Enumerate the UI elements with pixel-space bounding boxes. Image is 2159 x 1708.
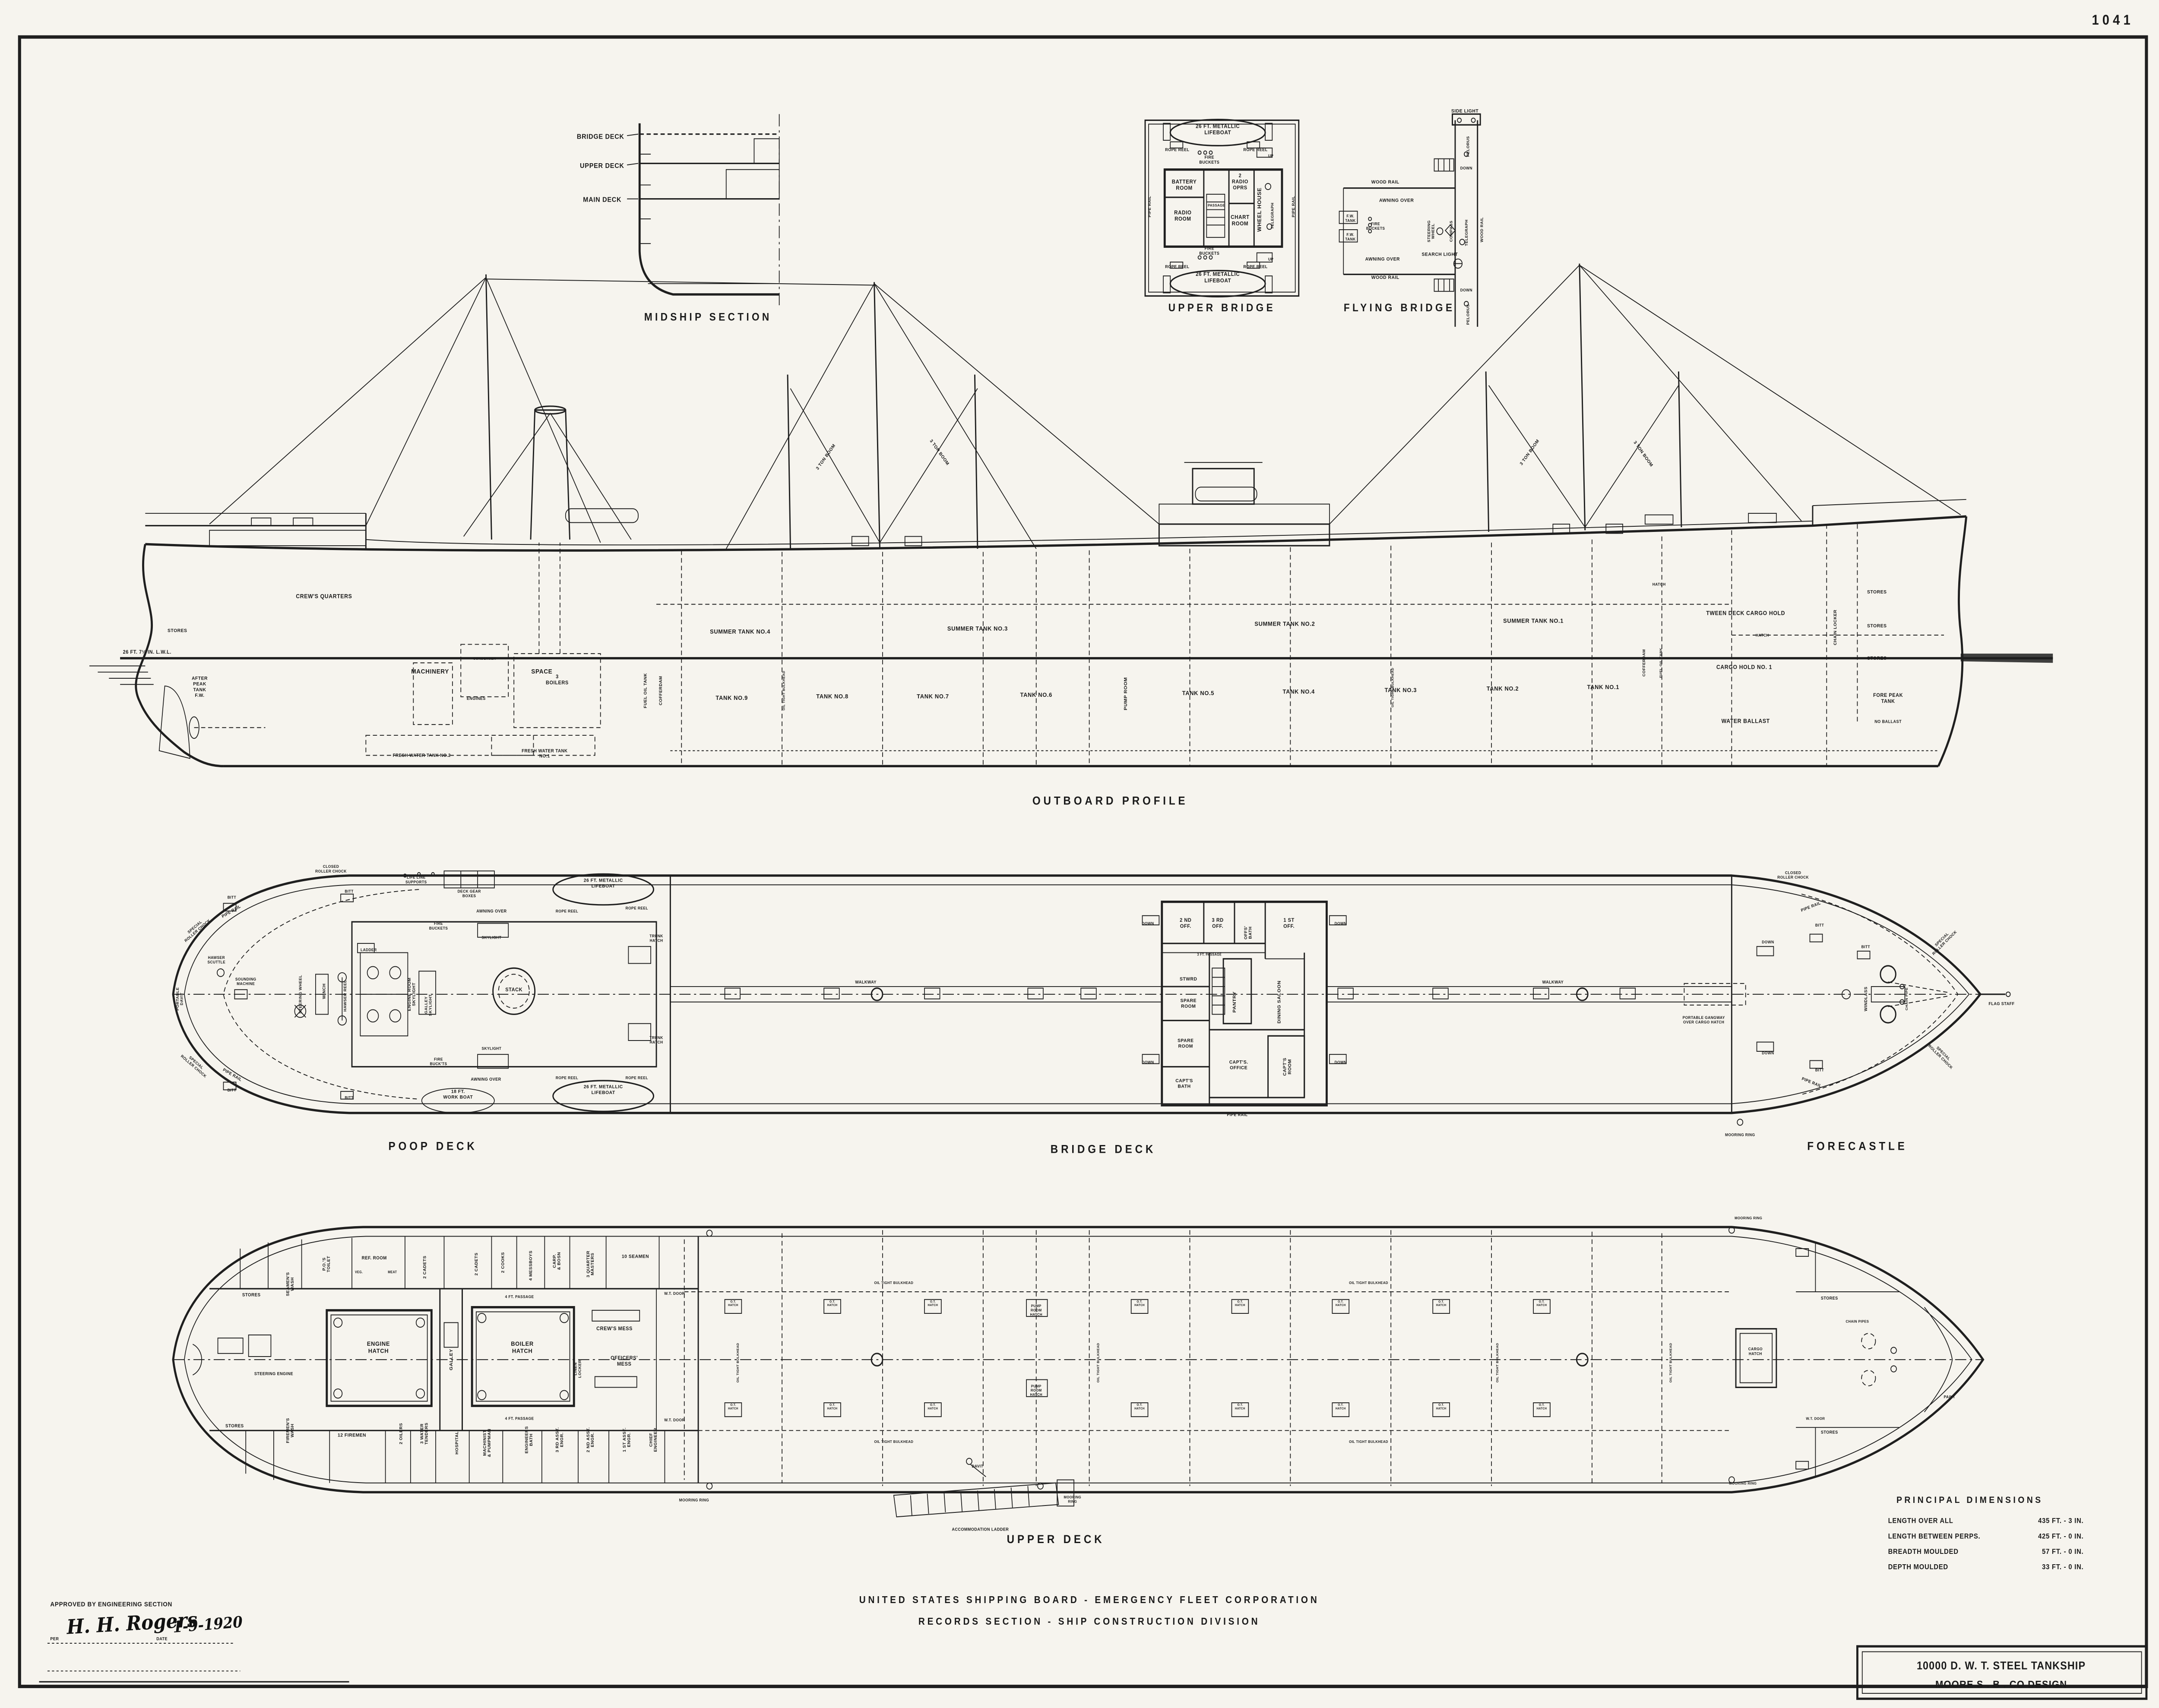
caption-flying-bridge: FLYING BRIDGE [1344, 302, 1455, 314]
title-line2: MOORE S . B . CO DESIGN [1935, 1679, 2067, 1690]
annotation-label: TANK NO.5 [1182, 690, 1215, 697]
annotation-label: 3 TON BOOM [929, 439, 950, 467]
annotation-label: STWRD [1180, 976, 1197, 982]
annotation-label: TANK NO.8 [816, 693, 848, 700]
annotation-label: 4 MESSBOYS [529, 1250, 533, 1281]
annotation-label: AWNING OVER [476, 909, 507, 914]
annotation-label: TANK NO.2 [1487, 685, 1519, 692]
dimension-value: 57 FT. - 0 IN. [2042, 1548, 2083, 1556]
annotation-label: 4 FT. PASSAGE [505, 1294, 534, 1299]
annotation-label: STEERINGWHEEL [1427, 220, 1435, 242]
annotation-label: BATTERYROOM [1172, 178, 1197, 191]
dimension-value: 435 FT. - 3 IN. [2038, 1517, 2083, 1525]
annotation-label: CARGO HOLD NO. 1 [1716, 664, 1772, 671]
annotation-label: PIPE RAIL [1227, 1113, 1247, 1118]
annotation-label: SUMMER TANK NO.2 [1254, 620, 1315, 627]
dimension-value: 425 FT. - 0 IN. [2038, 1533, 2083, 1540]
annotation-label: FIREBUCKETS [429, 921, 448, 930]
annotation-label: O.T.HATCH [1436, 1404, 1447, 1411]
sheet-border [19, 37, 2146, 1686]
annotation-label: CAPT'SROOM [1283, 1058, 1292, 1076]
annotation-label: HATCH [1756, 633, 1769, 637]
annotation-label: 2RADIOOPRS [1232, 173, 1248, 190]
annotation-label: FLAG STAFF [1988, 1002, 2014, 1007]
caption-bridge-deck: BRIDGE DECK [1051, 1143, 1156, 1156]
annotation-label: 3 FT. PASSAGE [1197, 952, 1222, 956]
annotation-label: OFFICERS'MESS [611, 1356, 638, 1367]
annotation-label: STORES [1867, 623, 1887, 629]
annotation-label: SUMMER TANK NO.3 [947, 625, 1008, 632]
annotation-label: BITT [345, 1095, 353, 1100]
annotation-label: OIL TIGHT BULKHEAD [874, 1440, 913, 1444]
annotation-label: CAPT'S.OFFICE [1229, 1060, 1248, 1071]
label-upper-deck: UPPER DECK [580, 162, 624, 170]
annotation-label: TRUNKHATCH [649, 933, 663, 943]
annotation-label: W.T. DOOR [664, 1418, 685, 1422]
annotation-label: OFFS'BATH [1244, 926, 1253, 939]
annotation-label: MOORING RING [679, 1498, 709, 1502]
annotation-label: PANTRY [1232, 991, 1237, 1012]
annotation-label: 12 FIREMEN [338, 1433, 366, 1438]
footer-line1: UNITED STATES SHIPPING BOARD - EMERGENCY… [859, 1594, 1320, 1605]
footer-titles: UNITED STATES SHIPPING BOARD - EMERGENCY… [859, 1594, 1320, 1627]
annotation-label: RADIOROOM [1174, 209, 1191, 222]
label-bridge-deck: BRIDGE DECK [577, 133, 624, 141]
label-waterline: 26 FT. 7½ IN. L.W.L. [123, 649, 171, 655]
annotation-label: CHIEFENGINEER [649, 1428, 658, 1452]
annotation-label: TANK NO.4 [1283, 688, 1315, 695]
annotation-label: STORES [1867, 656, 1887, 661]
annotation-label: W.T. DOOR [664, 1291, 685, 1296]
annotation-label: 3 TON BOOM [815, 443, 836, 471]
annotation-label: SPAREROOM [1178, 1038, 1193, 1049]
annotation-label: ACCOMMODATION LADDER [952, 1527, 1009, 1532]
annotation-label: COFFERDAM [1642, 649, 1646, 677]
annotation-label: FUEL OIL TANK [643, 673, 648, 708]
caption-poop-deck: POOP DECK [389, 1140, 478, 1152]
annotation-label: WINCH [322, 984, 326, 999]
annotation-label: FRESH WATER TANKNO.1 [522, 749, 568, 759]
annotation-label: TANK NO.3 [1385, 687, 1417, 694]
annotation-label: DOWN [1335, 1060, 1347, 1064]
annotation-label: ROPE REEL [1243, 148, 1267, 153]
annotation-label: DOWN [1142, 921, 1154, 926]
annotation-label: PIPE RAIL [1147, 196, 1151, 218]
annotation-label: AWNING OVER [471, 1077, 501, 1082]
annotation-label: O.T.HATCH [827, 1404, 838, 1411]
annotation-label: O.T.HATCH [928, 1300, 938, 1307]
annotation-label: COMPASS [1449, 221, 1453, 242]
annotation-label: OIL TIGHT BULKHEAD [1096, 1343, 1100, 1382]
approval-block: APPROVED BY ENGINEERING SECTION PER H. H… [39, 1601, 349, 1682]
annotation-label: DOWN [1762, 940, 1774, 944]
annotation-label: SUMMER TANK NO.1 [1503, 617, 1564, 624]
annotation-label: 3 WATERTENDERS [420, 1423, 429, 1445]
annotation-label: DOWN [1335, 921, 1347, 926]
annotation-label: TELEGRAPH [1464, 219, 1468, 246]
annotation-label: HOSPITAL [455, 1431, 459, 1455]
annotation-label: STORES [1867, 589, 1887, 595]
annotation-label: BITT [228, 895, 236, 899]
annotation-label: O.T.HATCH [1336, 1300, 1346, 1307]
annotation-label: FRESH WATER TANK NO.2 [393, 753, 451, 759]
annotation-label: HATCH [1652, 582, 1666, 586]
upper-bridge-plan: 26 FT. METALLICLIFEBOAT26 FT. METALLICLI… [1145, 120, 1299, 314]
annotation-label: CARP.& BOSN [553, 1252, 562, 1270]
annotation-label: TANK NO.9 [715, 694, 748, 701]
annotation-label: SOUNDINGMACHINE [235, 977, 256, 986]
annotation-label: FORE PEAKTANK [1873, 693, 1903, 704]
caption-upper-bridge: UPPER BRIDGE [1168, 302, 1276, 314]
annotation-label: 3 QUARTERMASTERS [586, 1251, 595, 1278]
annotation-label: SUMMER TANK NO.4 [710, 628, 770, 635]
annotation-label: HAWSERSCUTTLE [207, 955, 225, 964]
tankship-general-arrangement-drawing: 1041 BRIDGE DECKUPPER DECKMAIN DECKMIDSH… [0, 0, 2159, 1708]
annotation-label: O.T.HATCH [1134, 1404, 1145, 1411]
annotation-label: CHAIN PIPES [1846, 1319, 1869, 1323]
annotation-label: AFTERPEAKTANKF.W. [192, 676, 208, 698]
annotation-label: BOILERHATCH [511, 1340, 534, 1354]
annotation-label: STORES [1821, 1430, 1838, 1435]
annotation-label: BITT [228, 1088, 236, 1092]
annotation-label: STEERING ENGINE [254, 1371, 293, 1376]
annotation-label: TANK NO.6 [1020, 691, 1052, 698]
annotation-label: COFFERDAM [658, 676, 663, 705]
caption-upper-deck: UPPER DECK [1007, 1533, 1105, 1546]
annotation-label: BITT [1815, 923, 1824, 927]
annotation-label: 3BOILERS [546, 674, 569, 686]
annotation-label: REF. ROOM [362, 1256, 387, 1261]
annotation-label: 2 COOKS [501, 1252, 505, 1273]
annotation-label: OIL TIGHT BULKHEAD [1391, 667, 1395, 707]
annotation-label: O.T.HATCH [1235, 1300, 1245, 1307]
poop-bridge-forecastle-plan: CLOSEDROLLER CHOCKPIPE RAILSPECIALROLLER… [173, 864, 2014, 1156]
annotation-label: O.T.HATCH [827, 1300, 838, 1307]
annotation-label: WATER BALLAST [1722, 718, 1770, 724]
annotation-label: ENGINES [467, 696, 486, 702]
annotation-label: TWEEN DECK CARGO HOLD [1706, 610, 1785, 617]
annotation-label: PORTABLE GANGWAYOVER CARGO HATCH [1683, 1015, 1725, 1025]
annotation-label: F.W.TANK [1345, 214, 1356, 223]
annotation-label: SKYLIGHT [482, 1046, 502, 1050]
annotation-label: DINING SALOON [1277, 981, 1282, 1023]
annotation-label: SEAMEN'SWASH [286, 1272, 295, 1296]
annotation-label: MOORING RING [1735, 1216, 1762, 1220]
upper-deck-plan: STORESSEAMEN'SWASHP.O.'STOILETREF. ROOMV… [173, 1216, 1983, 1546]
page-number: 1041 [2092, 13, 2134, 28]
annotation-label: PIPE RAIL [1291, 196, 1295, 218]
approval-label: APPROVED BY ENGINEERING SECTION [50, 1601, 172, 1608]
annotation-label: PELORUS [1466, 136, 1470, 157]
outboard-profile-drawing: 26 FT. 7½ IN. L.W.L.STORESCREW'S QUARTER… [89, 264, 2053, 807]
annotation-label: CLOSEDROLLER CHOCK [315, 864, 347, 873]
annotation-label: P.O.'STOILET [322, 1256, 331, 1272]
annotation-label: OIL TIGHT BULKHEAD [874, 1281, 913, 1285]
annotation-label: UP [1268, 154, 1274, 158]
annotation-label: NO BALLAST [1874, 719, 1902, 724]
annotation-label: FIREMEN'SWASH [286, 1418, 295, 1443]
annotation-label: 3 RDOFF. [1212, 918, 1224, 930]
annotation-label: MOORING RING [1729, 1481, 1757, 1485]
annotation-label: O.T.HATCH [728, 1404, 738, 1411]
annotation-label: OIL TIGHT BULKHEAD [782, 671, 786, 710]
dimension-label: LENGTH BETWEEN PERPS. [1888, 1533, 1981, 1540]
annotation-label: BITT [345, 889, 353, 893]
annotation-label: 18 FT.WORK BOAT [443, 1089, 473, 1100]
caption-midship-section: MIDSHIP SECTION [644, 311, 772, 323]
annotation-label: SIDE LIGHT [1451, 108, 1478, 114]
annotation-label: DOWN [1460, 288, 1472, 292]
annotation-label: PASSAGE [1208, 203, 1225, 207]
flying-bridge-plan: SIDE LIGHTPELORUSDOWNWOOD RAILAWNING OVE… [1339, 108, 1484, 327]
annotation-label: W.T. DOOR [1806, 1417, 1825, 1420]
annotation-label: SKYLIGHT [482, 935, 502, 939]
annotation-label: F.W.TANK [1345, 232, 1356, 241]
annotation-label: BITT [1815, 1068, 1824, 1072]
dimension-label: LENGTH OVER ALL [1888, 1517, 1953, 1525]
annotation-label: ROPE REEL [1243, 265, 1267, 270]
annotation-label: DOWN [1762, 1051, 1774, 1055]
annotation-label: CONDENSER [473, 657, 496, 661]
annotation-label: ENGINEHATCH [367, 1340, 390, 1354]
annotation-label: FUEL OIL TANK [1659, 648, 1663, 678]
annotation-label: CARGOHATCH [1748, 1347, 1763, 1356]
annotation-label: STORES [242, 1293, 261, 1298]
annotation-label: STORES [225, 1424, 244, 1429]
annotation-label: WOOD RAIL [1480, 217, 1484, 242]
annotation-label: OIL TIGHT BULKHEAD [1496, 1343, 1500, 1382]
annotation-label: MACHINERY [411, 668, 449, 676]
annotation-label: STORES [1821, 1296, 1838, 1301]
annotation-label: VEG. [355, 1270, 363, 1274]
annotation-label: FIREBUCKETS [1199, 155, 1219, 165]
annotation-label: BITT [1861, 944, 1870, 949]
annotation-label: HAWSER REEL [343, 980, 347, 1012]
annotation-label: ENGINE ROOMSKYLIGHT [407, 977, 416, 1011]
annotation-label: WALKWAY [855, 980, 877, 985]
annotation-label: 2 CADETS [423, 1256, 427, 1278]
annotation-label: ROPE REEL [556, 909, 578, 913]
annotation-label: SEARCH LIGHT [1422, 252, 1458, 257]
annotation-label: PIPE RAIL [1801, 1076, 1822, 1089]
annotation-label: CHAIN LOCKER [1833, 610, 1837, 645]
annotation-label: CAPT'SBATH [1175, 1078, 1193, 1089]
annotation-label: OIL TIGHT BULKHEAD [1349, 1281, 1388, 1285]
annotation-label: AWNING OVER [1379, 198, 1414, 203]
annotation-label: DOWN [1460, 166, 1472, 170]
annotation-label: 4 FT. PASSAGE [505, 1416, 534, 1420]
annotation-label: SPECIALROLLER CHOCK [180, 1050, 210, 1079]
annotation-label: LINENLOCKER [573, 1360, 582, 1378]
annotation-label: O.T.HATCH [1537, 1300, 1547, 1307]
annotation-label: OIL TIGHT BULKHEAD [1669, 1343, 1673, 1382]
annotation-label: PUMPROOMHATCH [1030, 1304, 1042, 1316]
annotation-label: STEERING WHEEL [298, 975, 302, 1014]
annotation-label: GALLEY [449, 1349, 453, 1370]
annotation-label: DECK GEARBOXES [458, 889, 481, 898]
annotation-label: TANK NO.7 [917, 693, 949, 700]
annotation-label: O.T.HATCH [1134, 1300, 1145, 1307]
annotation-label: 3 TON BOOM [1633, 440, 1654, 468]
annotation-label: 2 NDOFF. [1180, 918, 1191, 930]
annotation-label: O.T.HATCH [728, 1300, 738, 1307]
annotation-label: WOOD RAIL [1371, 275, 1399, 281]
annotation-label: LIFE LINESUPPORTS [405, 875, 427, 884]
annotation-label: 2 CADETS [474, 1253, 478, 1275]
annotation-label: LADDER [361, 948, 377, 952]
annotation-label: O.T.HATCH [1436, 1300, 1447, 1307]
dimension-value: 33 FT. - 0 IN. [2042, 1563, 2083, 1571]
annotation-label: SPECIALROLLER CHOCK [1928, 1040, 1956, 1070]
annotation-label: PORTABLEDAVIT [175, 987, 184, 1011]
annotation-label: WOOD RAIL [1371, 179, 1399, 185]
annotation-label: FIREBUCK'TS [430, 1057, 447, 1066]
annotation-label: 2 OILERS [399, 1423, 403, 1444]
principal-dimensions-title: PRINCIPAL DIMENSIONS [1896, 1495, 2043, 1505]
annotation-label: O.T.HATCH [1336, 1404, 1346, 1411]
principal-dimensions: PRINCIPAL DIMENSIONS LENGTH OVER ALL 435… [1888, 1495, 2084, 1571]
annotation-label: ROPE REEL [626, 1075, 648, 1080]
annotation-label: CREW'S QUARTERS [296, 593, 352, 600]
label-main-deck: MAIN DECK [583, 196, 621, 204]
annotation-label: STORES [168, 628, 187, 633]
annotation-label: PELORUS [1466, 304, 1470, 325]
annotation-label: O.T.HATCH [928, 1404, 938, 1411]
annotation-label: PUMPROOMHATCH [1030, 1384, 1042, 1397]
annotation-label: SPAREROOM [1181, 998, 1197, 1009]
annotation-label: CLOSEDROLLER CHOCK [1777, 870, 1809, 879]
annotation-label: TANK NO.1 [1587, 683, 1620, 690]
annotation-label: WALKWAY [1542, 980, 1564, 985]
annotation-label: OIL TIGHT BULKHEAD [736, 1343, 740, 1382]
annotation-label: SPACE [531, 668, 552, 676]
annotation-label: FIREBUCKETS [1366, 221, 1385, 231]
annotation-label: GALLEYSKYLIGHT [424, 994, 432, 1016]
annotation-label: O.T.HATCH [1235, 1404, 1245, 1411]
annotation-label: UP [1268, 257, 1274, 261]
annotation-label: DOWN [1142, 1060, 1154, 1064]
annotation-label: STACK [505, 987, 522, 993]
annotation-label: ROPE REEL [556, 1075, 578, 1080]
approval-date-label: DATE [156, 1637, 168, 1642]
dimension-label: BREADTH MOULDED [1888, 1548, 1959, 1556]
title-block: 10000 D. W. T. STEEL TANKSHIP MOORE S . … [1857, 1646, 2146, 1699]
annotation-label: 26 FT. METALLICLIFEBOAT [1196, 123, 1240, 136]
dimension-label: DEPTH MOULDED [1888, 1563, 1948, 1571]
annotation-label: O.T.HATCH [1537, 1404, 1547, 1411]
title-line1: 10000 D. W. T. STEEL TANKSHIP [1917, 1660, 2086, 1672]
annotation-label: 26 FT. METALLICLIFEBOAT [584, 878, 623, 889]
annotation-label: PIPE RAIL [1800, 901, 1821, 913]
annotation-label: PUMP ROOM [1123, 677, 1128, 710]
caption-outboard-profile: OUTBOARD PROFILE [1032, 795, 1188, 807]
annotation-label: ROPE REEL [1165, 148, 1189, 153]
annotation-label: WINDLASS [1864, 987, 1868, 1011]
annotation-label: MOORING RING [1725, 1132, 1755, 1137]
annotation-label: PAINT [1944, 1395, 1956, 1399]
annotation-label: CREW'S MESS [596, 1326, 633, 1332]
approval-per-label: PER [50, 1637, 59, 1642]
annotation-label: MACHINIST& PUMPMAN [483, 1429, 492, 1457]
annotation-label: ROPE REEL [626, 906, 648, 910]
annotation-label: DAVIT [972, 1464, 984, 1468]
annotation-label: MOORINGRING [1064, 1495, 1082, 1503]
annotation-label: 26 FT. METALLICLIFEBOAT [584, 1084, 623, 1095]
annotation-label: MEAT [388, 1270, 397, 1274]
annotation-label: SPECIALROLLER CHOCK [1929, 926, 1958, 956]
midship-section-drawing: BRIDGE DECKUPPER DECKMAIN DECKMIDSHIP SE… [577, 114, 779, 323]
annotation-label: TRUNKHATCH [649, 1035, 663, 1044]
annotation-label: TELEGRAPH [1270, 202, 1274, 229]
annotation-label: AWNING OVER [1365, 256, 1400, 262]
footer-line2: RECORDS SECTION - SHIP CONSTRUCTION DIVI… [918, 1616, 1260, 1627]
annotation-label: CHAIN PIPE [1905, 987, 1909, 1010]
caption-forecastle: FORECASTLE [1807, 1140, 1907, 1152]
annotation-label: 10 SEAMEN [622, 1254, 649, 1259]
annotation-label: OIL TIGHT BULKHEAD [1349, 1440, 1388, 1444]
annotation-label: 3 TON BOOM [1519, 439, 1540, 467]
annotation-label: 26 FT. METALLICLIFEBOAT [1196, 271, 1240, 284]
annotation-label: 1 STOFF. [1283, 918, 1295, 930]
annotation-label: CHARTROOM [1231, 214, 1250, 226]
annotation-label: ROPE REEL [1165, 265, 1189, 270]
annotation-label: WHEEL HOUSE [1257, 187, 1262, 231]
